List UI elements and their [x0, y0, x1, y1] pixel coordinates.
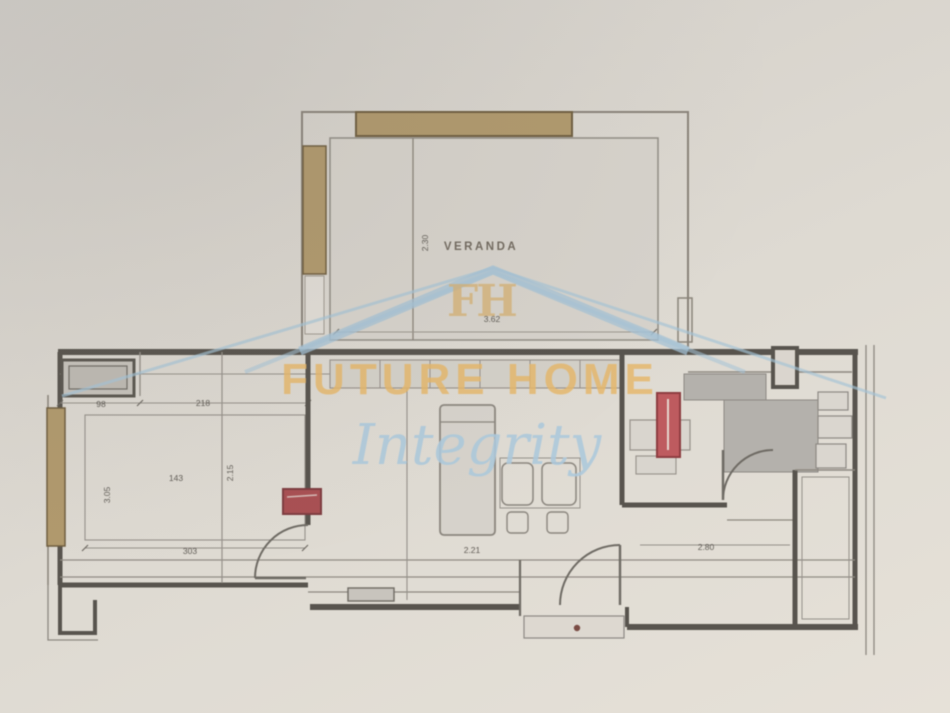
stool-right: [547, 512, 568, 533]
kitchen-floor-strip: [684, 374, 766, 400]
left-window-strip: [47, 408, 65, 546]
bedroom-inner-outline: [85, 415, 305, 540]
bedroom-door-arc: [255, 525, 308, 578]
dim-bedroom-width: 303: [183, 546, 197, 556]
veranda-top-rail: [356, 112, 572, 136]
wall-bottom-left-step: [60, 585, 95, 633]
bathroom-floor: [724, 400, 818, 472]
radiator-red-box: [283, 489, 321, 514]
stool-left: [507, 512, 528, 533]
dim-bedroom-inner-width: 143: [169, 473, 183, 483]
dim-bedroom-inner-depth: 2.15: [225, 464, 235, 481]
dim-hall-width: 2.80: [698, 542, 715, 552]
sink: [818, 416, 852, 438]
brand-tagline: Integrity: [352, 413, 603, 478]
brand-name: FUTURE HOME: [281, 355, 659, 404]
toilet: [816, 444, 846, 468]
dim-living-width: 2.21: [464, 545, 481, 555]
floorplan-photo: VERANDA 3.62 2.30 98 218 143 303 3.05 2.…: [0, 0, 950, 713]
entrance-peephole-dot: [574, 625, 580, 631]
shoe-cabinet: [348, 588, 394, 601]
veranda-left-window: [305, 276, 324, 334]
dim-veranda-depth: 2.30: [420, 234, 430, 251]
veranda-right-pillar: [678, 298, 692, 342]
bath-cabinet: [818, 392, 848, 410]
dim-bedroom-seg1: 98: [96, 399, 106, 409]
veranda-left-rail: [303, 146, 326, 274]
brand-monogram: FH: [447, 276, 516, 327]
entrance-door-arc: [560, 545, 620, 605]
floorplan-drawing: VERANDA 3.62 2.30 98 218 143 303 3.05 2.…: [0, 0, 950, 713]
veranda-label: VERANDA: [444, 241, 518, 253]
dim-bedroom-seg2: 218: [196, 398, 210, 408]
closet-inner-outline: [802, 477, 849, 619]
kitchen-cabinet: [636, 456, 676, 474]
dim-bedroom-depth: 3.05: [102, 486, 112, 503]
